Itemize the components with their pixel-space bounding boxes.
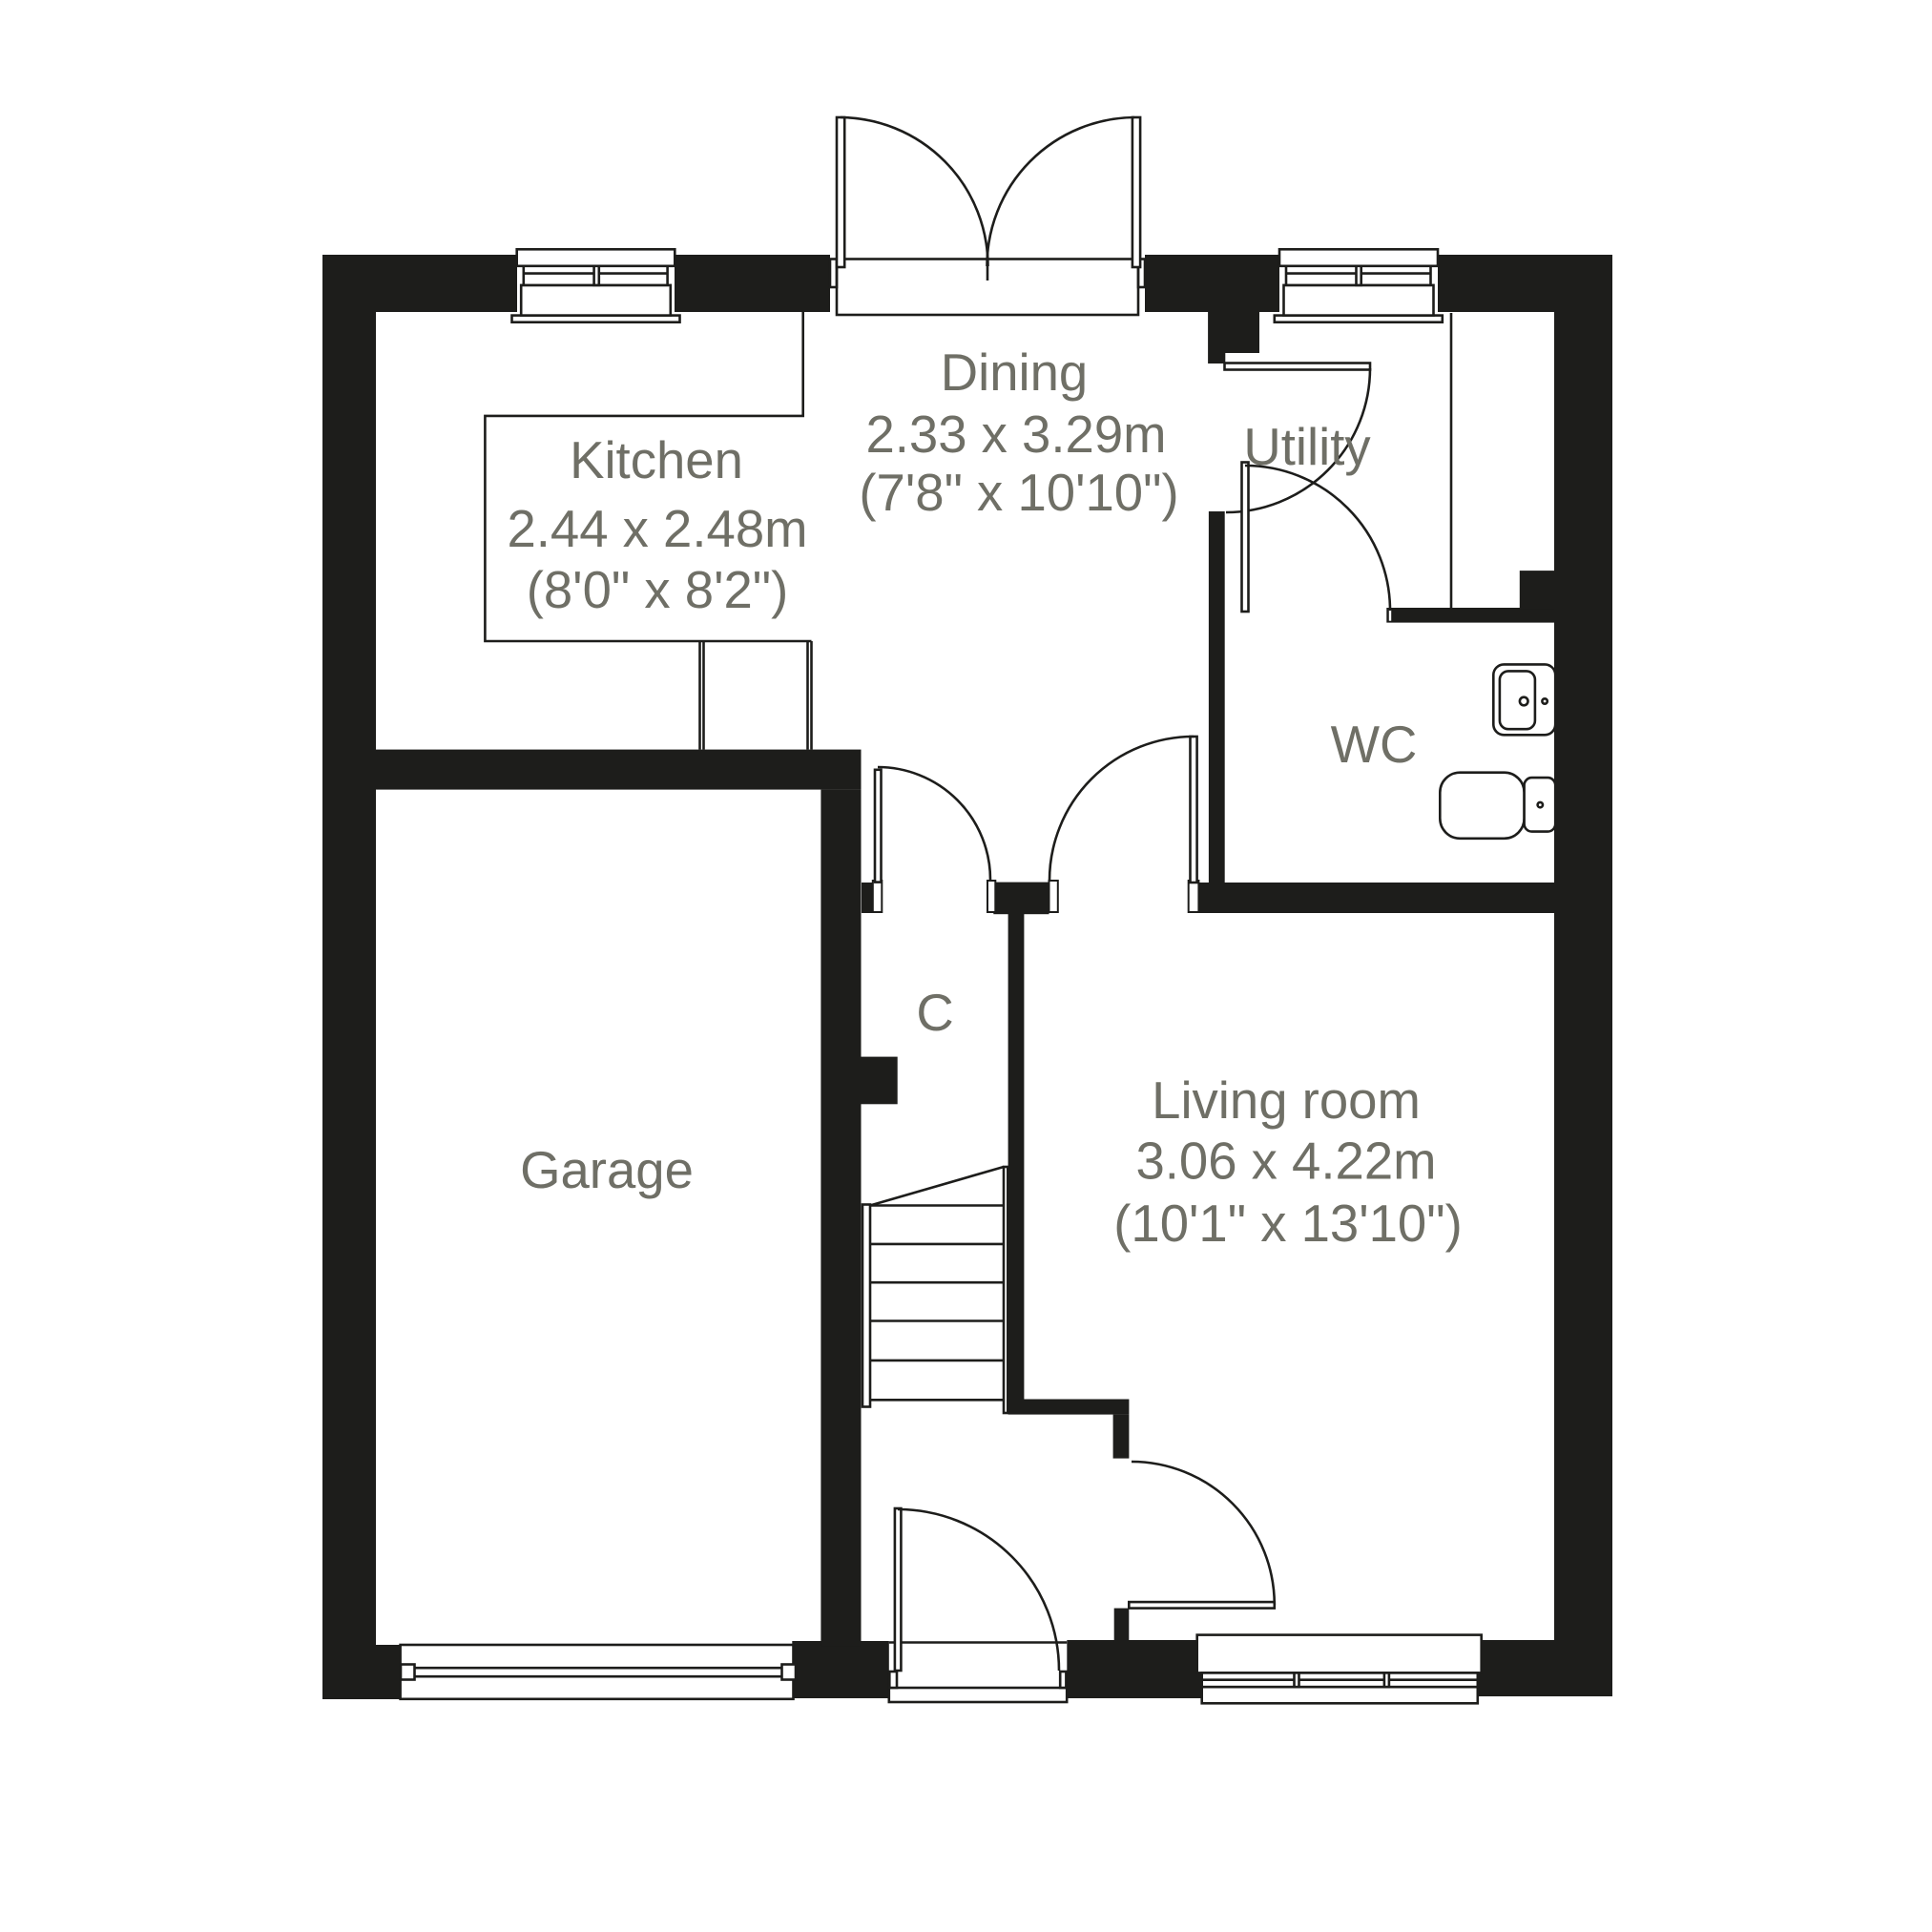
svg-text:(7'8" x 10'10"): (7'8" x 10'10"): [859, 464, 1178, 522]
svg-text:Kitchen: Kitchen: [570, 431, 743, 489]
svg-text:Utility: Utility: [1243, 418, 1371, 476]
svg-text:3.06 x 4.22m: 3.06 x 4.22m: [1135, 1132, 1436, 1191]
svg-text:WC: WC: [1331, 716, 1418, 774]
svg-text:(8'0" x 8'2"): (8'0" x 8'2"): [527, 561, 789, 619]
svg-text:C: C: [916, 984, 953, 1042]
svg-text:Living room: Living room: [1152, 1071, 1421, 1130]
svg-text:(10'1" x 13'10"): (10'1" x 13'10"): [1113, 1195, 1463, 1253]
svg-text:Garage: Garage: [520, 1141, 694, 1199]
svg-text:2.44 x 2.48m: 2.44 x 2.48m: [507, 500, 807, 558]
svg-text:Dining: Dining: [941, 343, 1089, 402]
svg-text:2.33 x 3.29m: 2.33 x 3.29m: [865, 405, 1166, 464]
